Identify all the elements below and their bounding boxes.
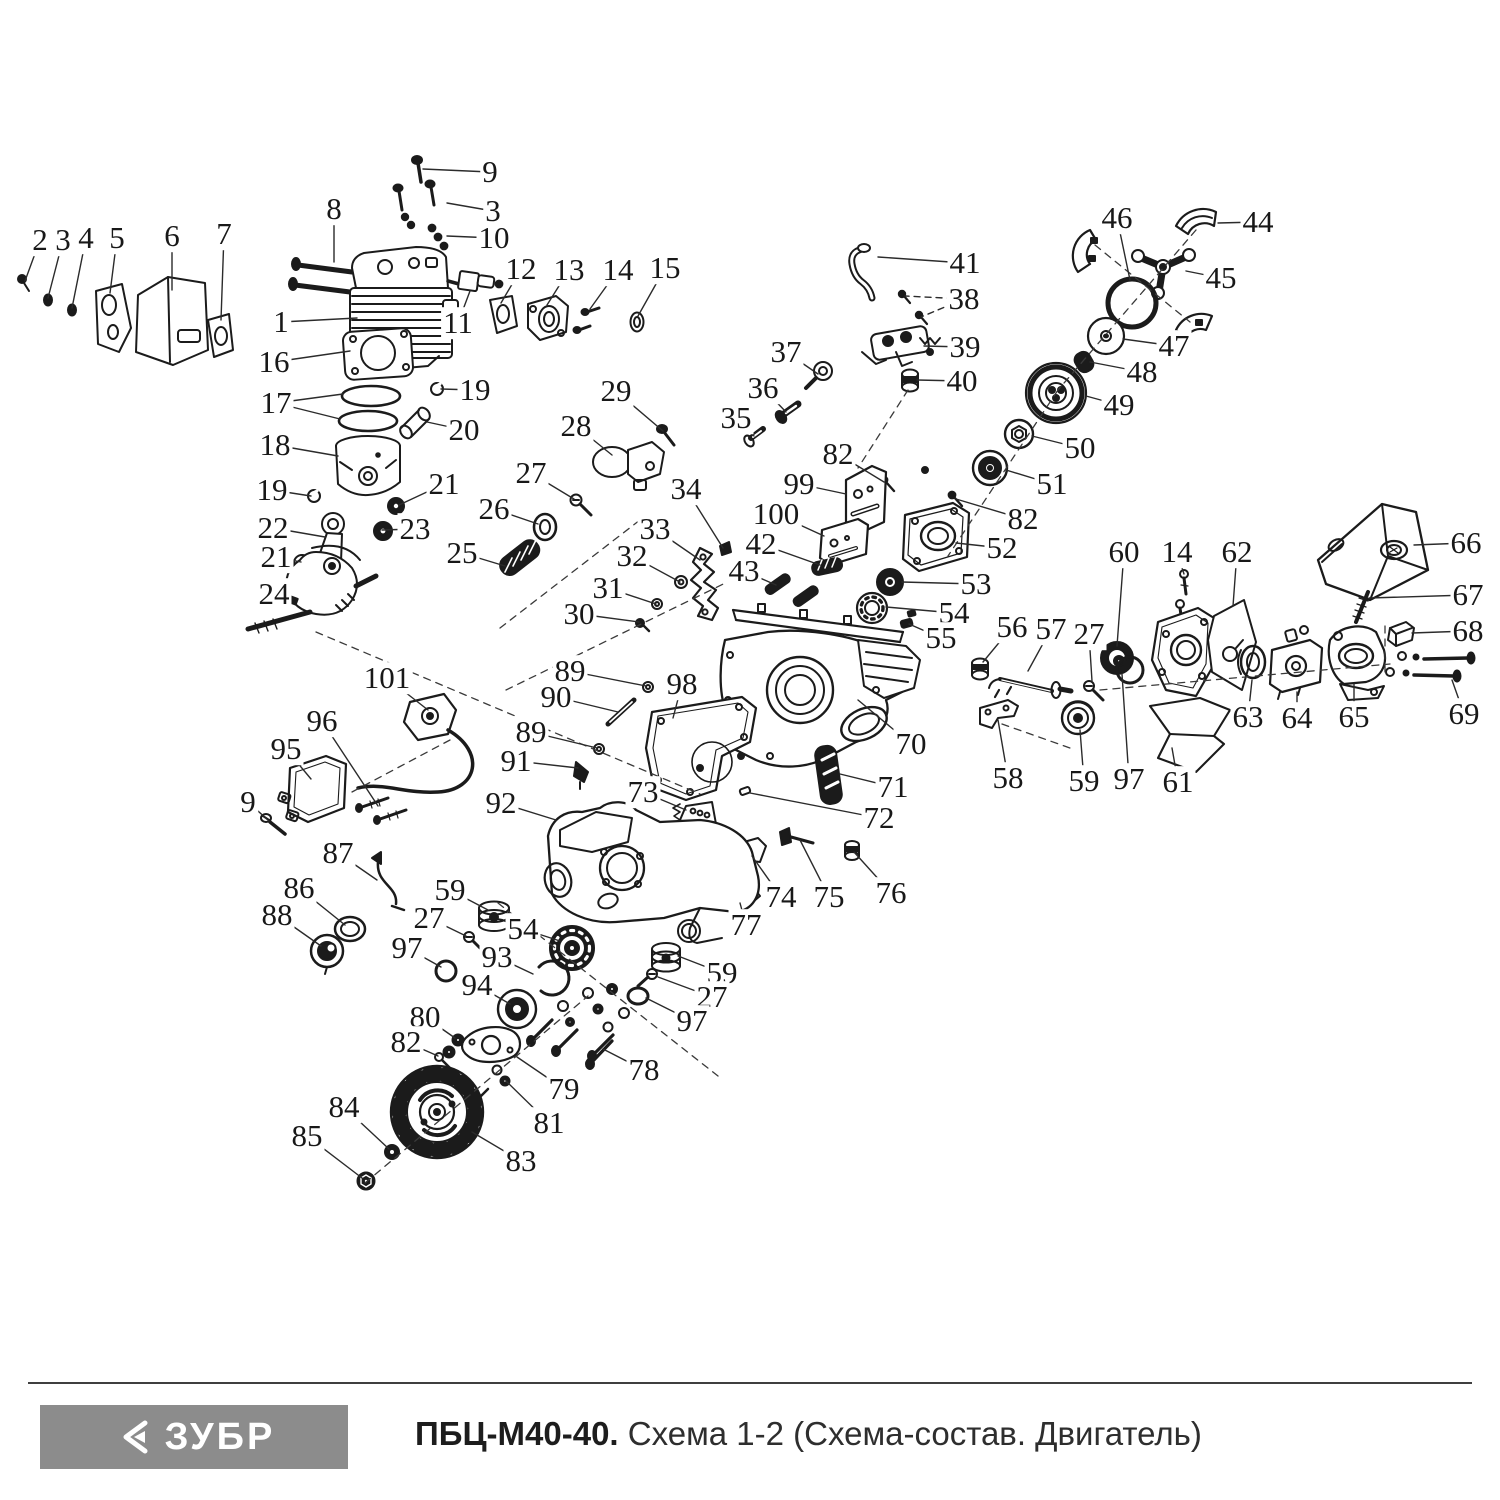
leader-line-3 [447,203,493,211]
leader-line-30 [579,614,639,622]
leader-line-17 [276,394,343,403]
leader-line-90 [556,697,618,712]
leader-line-31 [608,588,656,604]
diagram-caption: ПБЦ-М40-40. Схема 1-2 (Схема-состав. Дви… [415,1415,1202,1453]
leader-line-62 [1233,552,1237,606]
leader-line-27 [658,977,712,997]
zubr-logo-text: ЗУБР [165,1416,276,1459]
zubr-logo: ЗУБР [40,1405,348,1469]
leader-line-40 [917,380,962,381]
leader-line-9 [248,802,269,821]
leader-line-92 [501,803,556,820]
leader-line-59 [450,890,488,910]
leader-line-45 [1186,271,1221,278]
leader-line-15 [638,268,665,316]
leader-line-63 [1248,680,1252,717]
leader-line-51 [1006,470,1052,484]
exploded-diagram-svg [0,0,1500,1500]
leader-line-4 [72,238,86,308]
leader-line-3 [48,240,63,298]
leader-line-27 [531,473,574,499]
leader-line-87 [338,853,377,880]
leader-line-50 [1032,436,1080,448]
leader-line-89 [531,732,597,748]
leader-line-99 [799,484,846,494]
part-oil-tank-half-group [541,802,759,943]
leader-line-53 [902,582,976,584]
leader-line-82 [406,1042,438,1056]
leader-line-79 [517,1057,564,1089]
leader-line-59 [678,956,722,973]
leader-line-67 [1369,595,1468,598]
leader-line-47 [1123,339,1174,346]
part-ignition-group [261,694,473,974]
leader-line-32 [632,556,680,582]
leader-line-48 [1090,362,1142,372]
leader-line-100 [776,514,824,536]
model-number: ПБЦ-М40-40. [415,1415,619,1452]
leader-line-83 [472,1132,521,1161]
leader-line-56 [983,627,1012,662]
leader-line-86 [299,888,345,925]
footer-divider [28,1382,1472,1384]
leader-line-18 [275,445,338,456]
part-oil-pump-group [497,425,674,579]
leader-line-19 [441,389,475,390]
leader-line-38 [921,299,964,317]
leader-line-89 [570,671,646,686]
part-carburetor-assembly-group [972,504,1475,772]
leader-line-54 [886,607,954,613]
leader-line-59 [1080,730,1084,781]
leader-line-1 [281,318,357,322]
leader-line-60 [1117,552,1124,646]
leader-line-28 [576,426,612,455]
leader-line-17 [276,403,340,419]
leader-line-19 [272,490,311,496]
part-piston-crank-group [248,328,443,633]
leader-line-26 [494,509,538,524]
part-starter-group [881,209,1216,506]
leader-line-14 [590,270,618,309]
leader-line-78 [603,1049,644,1070]
leader-line-97 [1122,674,1129,779]
leader-line-7 [221,234,224,320]
leader-line-27 [1089,634,1092,681]
leader-line-21 [399,484,444,505]
leader-line-43 [744,571,776,585]
leader-line-27 [429,918,466,936]
leader-line-55 [909,624,941,638]
leader-line-91 [516,761,578,768]
leader-line-37 [786,352,818,374]
leader-line-35 [736,418,754,436]
leader-line-23 [382,529,415,530]
leader-line-29 [616,391,663,431]
leader-line-38 [905,296,964,299]
part-crankcase-group [646,604,920,800]
leader-line-16 [274,351,350,362]
part-cylinder-group [289,156,644,371]
leader-line-9 [423,169,490,172]
leader-line-97 [646,998,692,1021]
leader-line-10 [447,236,494,238]
leader-line-81 [506,1081,549,1123]
leader-line-80 [425,1017,455,1038]
leader-line-39 [924,346,965,347]
leader-line-33 [655,529,700,560]
leader-line-46 [1117,218,1130,280]
leader-line-76 [854,852,891,893]
diagram-subtitle: Схема 1-2 (Схема-состав. Двигатель) [628,1415,1202,1452]
leader-line-69 [1452,680,1464,714]
leader-line-20 [427,422,464,430]
leader-line-93 [497,957,533,974]
leader-line-84 [344,1107,389,1149]
leader-line-49 [1086,396,1119,405]
exploded-parts-diagram-page: 2345678931011112131415161718192021192223… [0,0,1500,1500]
leader-line-72 [750,793,879,818]
leader-line-58 [998,720,1008,778]
zubr-arrow-icon [113,1416,155,1458]
leader-line-44 [1218,222,1258,223]
leader-line-75 [800,840,829,897]
part-fuel-line-group [742,244,940,448]
leader-line-71 [840,774,893,787]
leader-line-57 [1028,629,1051,671]
leader-line-11 [458,291,470,323]
leader-line-2 [25,240,40,281]
leader-line-68 [1412,631,1468,633]
leader-line-85 [307,1136,362,1178]
leader-line-41 [878,257,965,263]
leader-line-36 [763,388,786,412]
part-clutch-cover-group [764,466,969,628]
leader-line-101 [387,678,428,710]
leader-line-22 [273,528,325,537]
leader-line-42 [761,544,820,565]
leader-line-97 [407,948,441,967]
leader-line-34 [686,489,723,548]
leader-line-88 [277,915,321,946]
leader-line-25 [462,553,505,566]
